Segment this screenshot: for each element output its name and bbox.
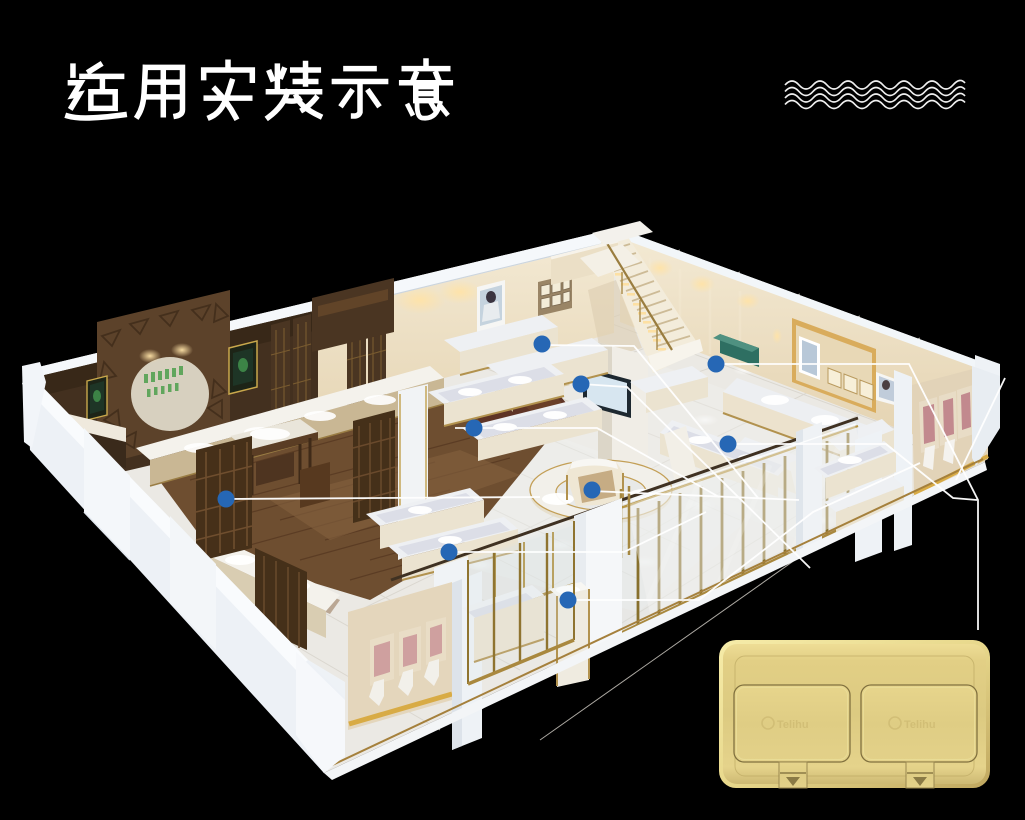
svg-text:Telihu: Telihu [777, 719, 809, 731]
svg-text:Telihu: Telihu [904, 719, 936, 731]
